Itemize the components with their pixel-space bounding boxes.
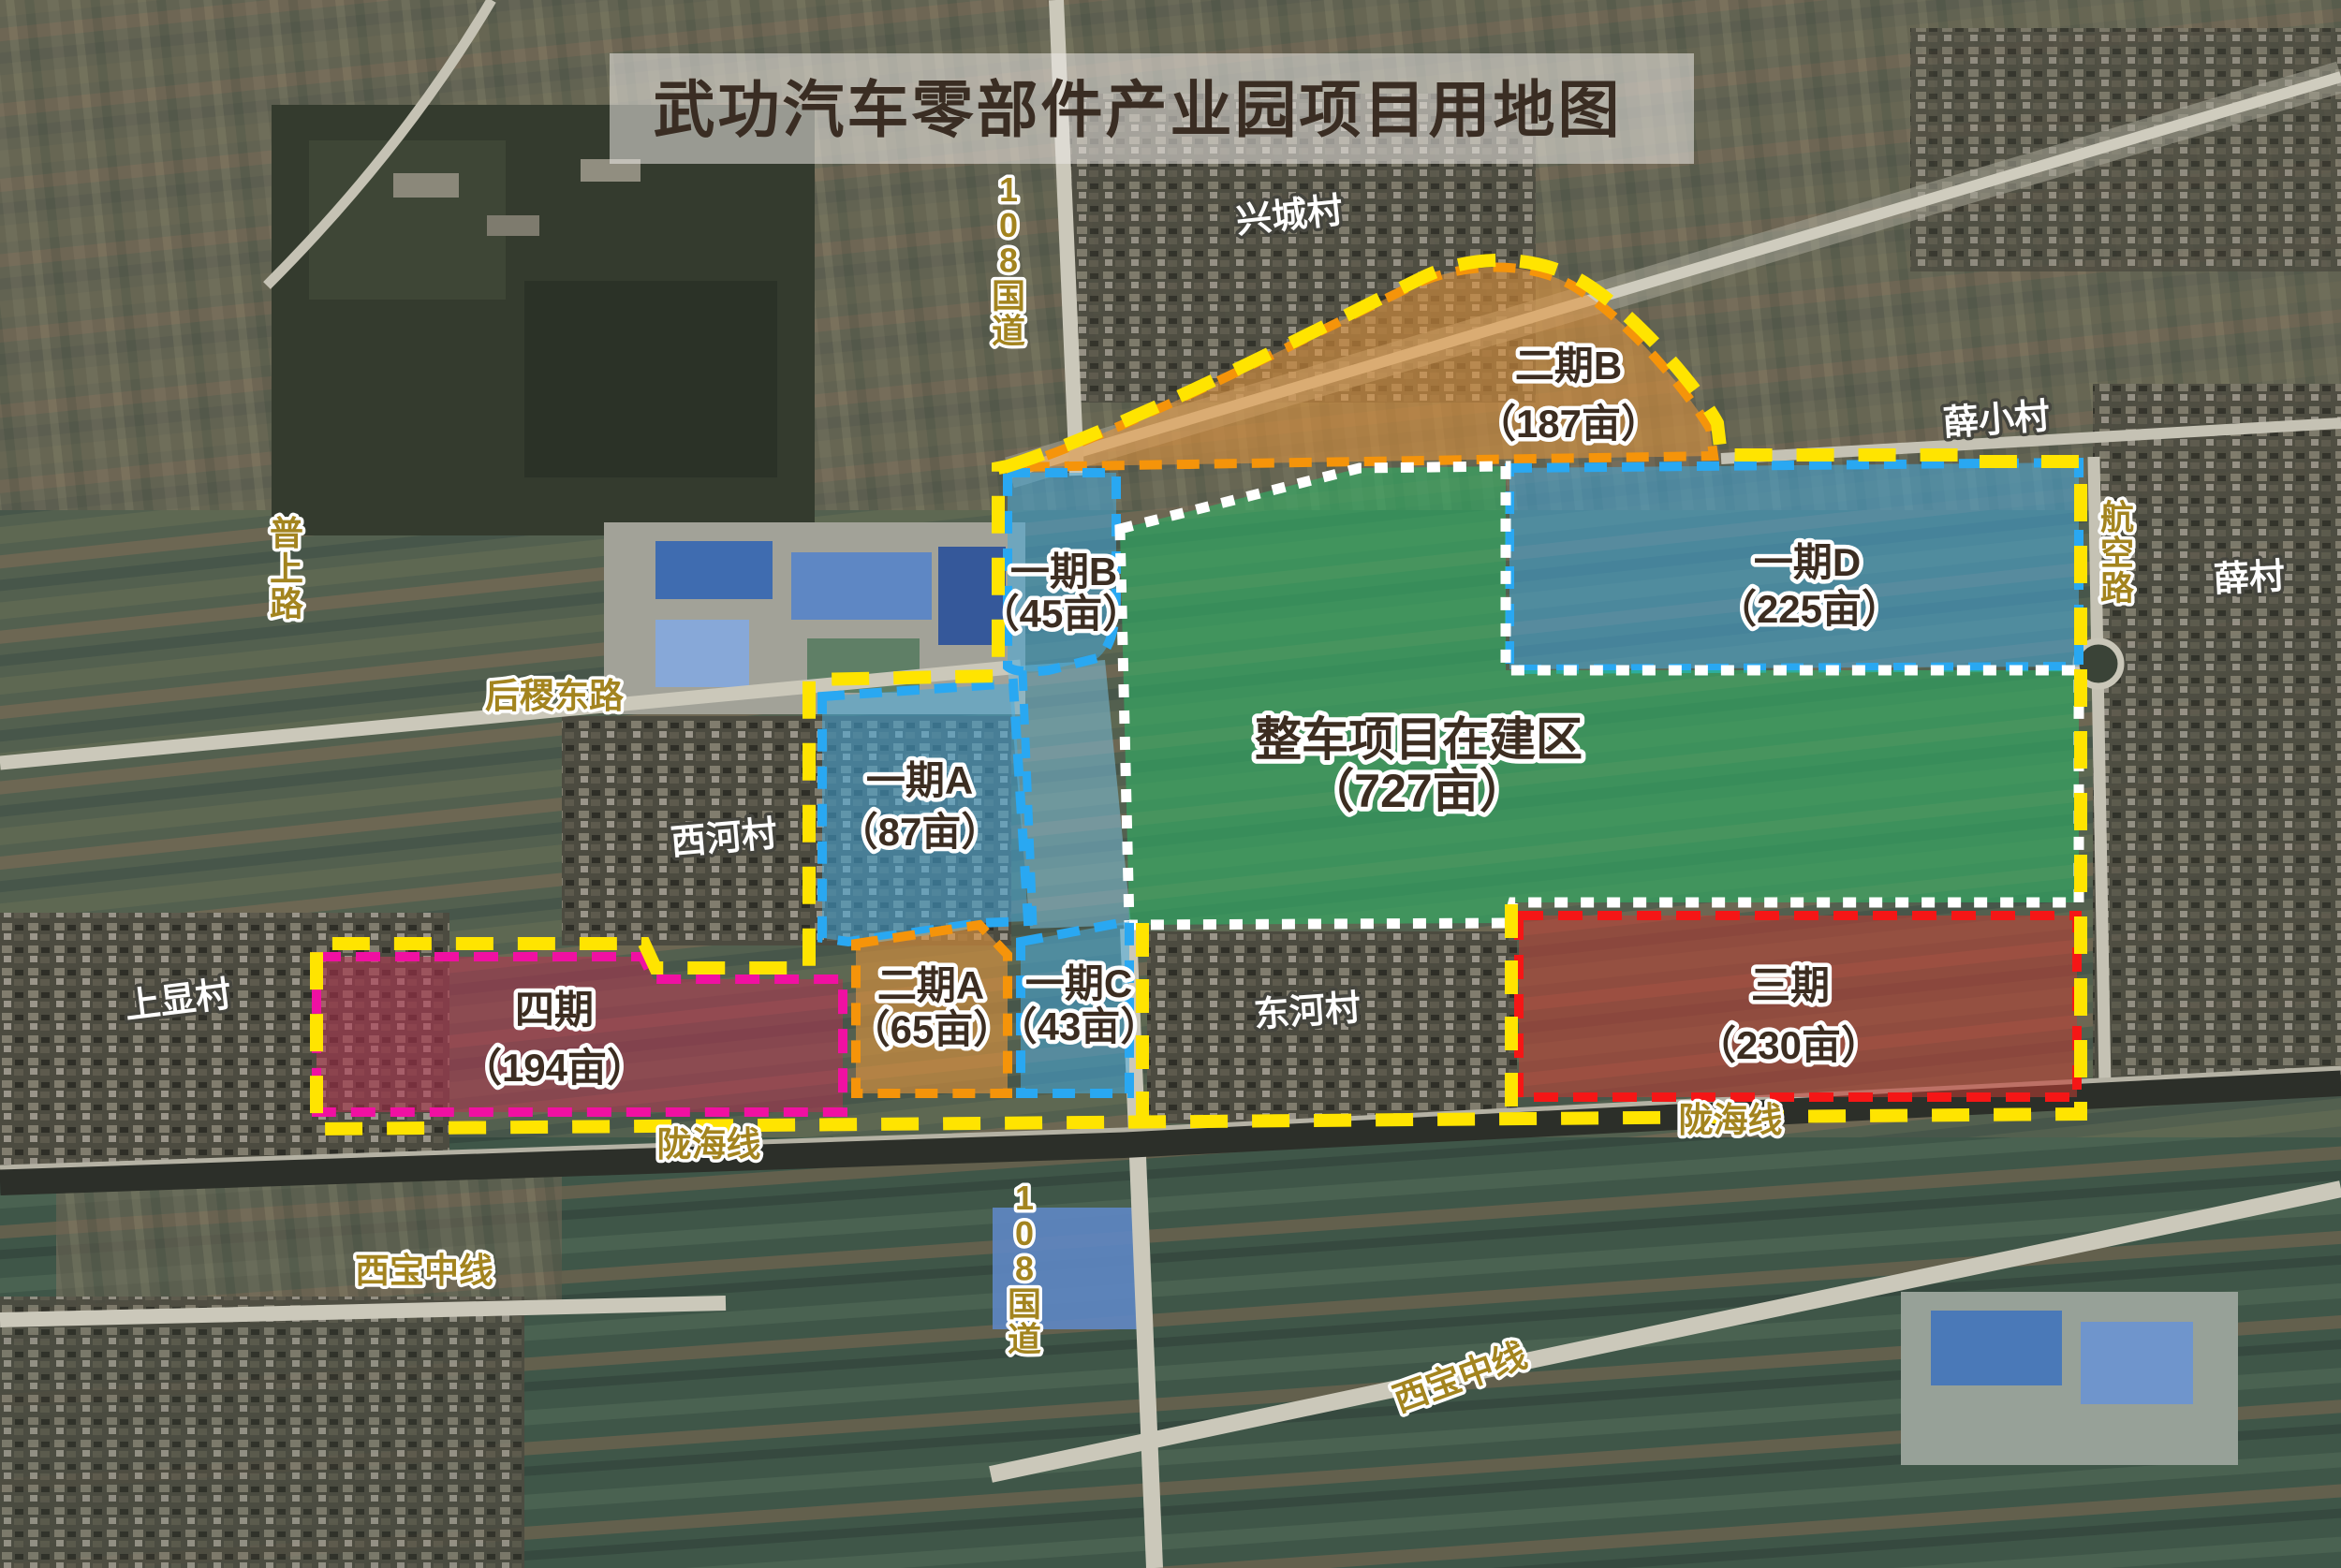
road-label-houji-east: 后稷东路 [485, 677, 625, 715]
zone-phase1c-area: （43亩） [998, 1004, 1160, 1048]
zone-phase2a-label: 二期A [877, 963, 984, 1007]
village-label-donghe: 东河村 [1253, 989, 1362, 1035]
zone-phase2a-area: （65亩） [851, 1007, 1013, 1051]
title-bar: 武功汽车零部件产业园项目用地图 [610, 53, 1694, 164]
village-label-xuecun: 薛村 [2213, 557, 2286, 600]
zone-vehicle-area: （727亩） [1307, 765, 1525, 817]
zone-phase3-label: 三期 [1751, 963, 1830, 1007]
zone-phase1a-area: （87亩） [839, 810, 1001, 854]
road-label-longhai-west: 陇海线 [657, 1125, 761, 1164]
zone-phase1d-label: 一期D [1754, 540, 1861, 584]
zone-phase3-area: （230亩） [1697, 1023, 1880, 1067]
road-label-longhai-east: 陇海线 [1679, 1101, 1783, 1139]
satellite-map-canvas: 武功汽车零部件产业园项目用地图 二期B （187亩） 一期D （225亩） 一期… [0, 0, 2341, 1568]
page-title: 武功汽车零部件产业园项目用地图 [654, 75, 1623, 144]
zone-phase2b-label: 二期B [1515, 344, 1622, 388]
village-label-xuexiao: 薛小村 [1942, 397, 2052, 444]
zone-phase1b-label: 一期B [1010, 550, 1117, 593]
zone-phase4-area: （194亩） [463, 1046, 646, 1090]
zone-phase1d-area: （225亩） [1717, 587, 1901, 631]
zone-phase1b-area: （45亩） [980, 592, 1142, 636]
zone-phase4-label: 四期 [515, 988, 594, 1032]
road-label-hangkong: 航空路 [2100, 498, 2135, 608]
zone-phase1c-label: 一期C [1025, 961, 1132, 1005]
zone-vehicle-label: 整车项目在建区 [1255, 713, 1583, 766]
road-label-xibao-west: 西宝中线 [355, 1252, 493, 1290]
zone-phase2b-area: （187亩） [1477, 402, 1660, 446]
zone-phase1a-label: 一期A [866, 758, 973, 802]
road-label-pushang: 普上路 [270, 514, 304, 623]
xuecun-village-area [2093, 384, 2341, 1081]
project-land-use-map: 武功汽车零部件产业园项目用地图 二期B （187亩） 一期D （225亩） 一期… [0, 0, 2341, 1568]
